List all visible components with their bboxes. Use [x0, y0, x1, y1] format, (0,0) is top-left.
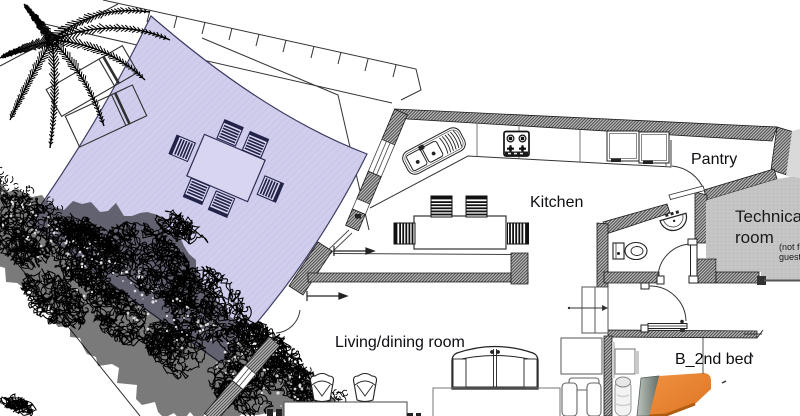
- svg-text:B_2nd bed: B_2nd bed: [675, 351, 752, 368]
- svg-text:Kitchen: Kitchen: [530, 194, 583, 211]
- svg-text:Pantry: Pantry: [691, 151, 737, 168]
- svg-text:guests: guests: [779, 252, 800, 262]
- svg-text:room: room: [735, 228, 774, 247]
- svg-text:Technical: Technical: [735, 207, 800, 226]
- svg-text:(not fo: (not fo: [779, 242, 800, 252]
- svg-text:Living/dining room: Living/dining room: [335, 334, 465, 351]
